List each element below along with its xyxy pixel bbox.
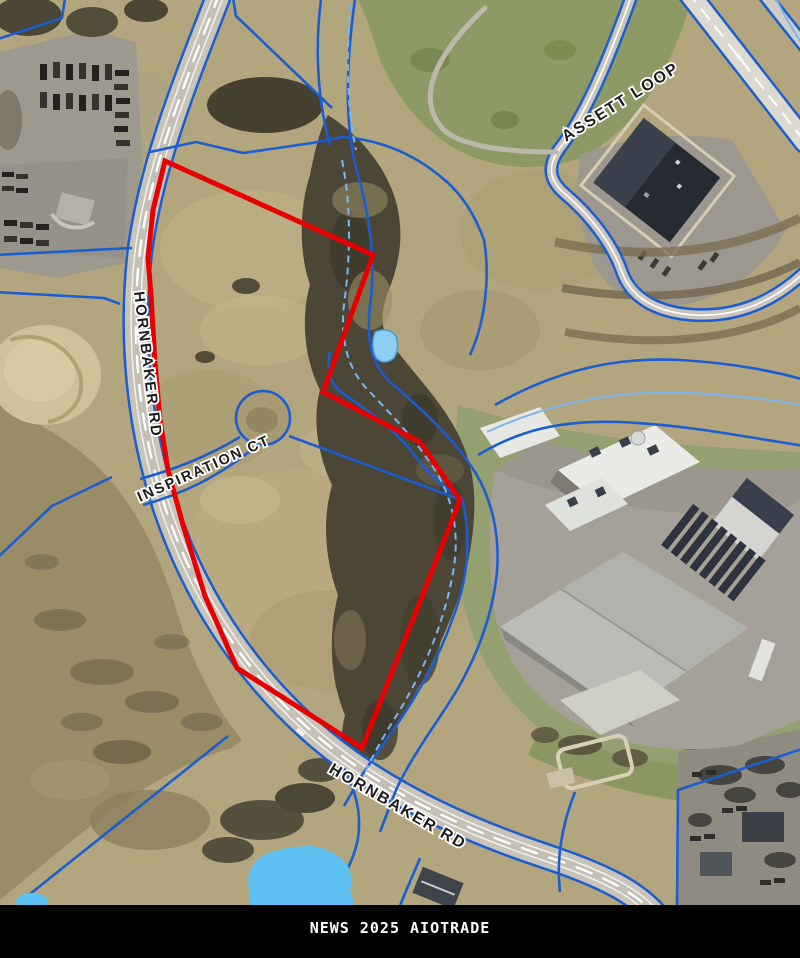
- small-pond: [373, 330, 398, 362]
- map-viewport[interactable]: HORNBAKER RD INSPIRATION CT ASSETT LOOP …: [0, 0, 800, 958]
- attribution-bar: NEWS 2025 AIOTRADE: [0, 905, 800, 958]
- attribution-text: NEWS 2025 AIOTRADE: [0, 919, 800, 937]
- aerial-map[interactable]: HORNBAKER RD INSPIRATION CT ASSETT LOOP …: [0, 0, 800, 905]
